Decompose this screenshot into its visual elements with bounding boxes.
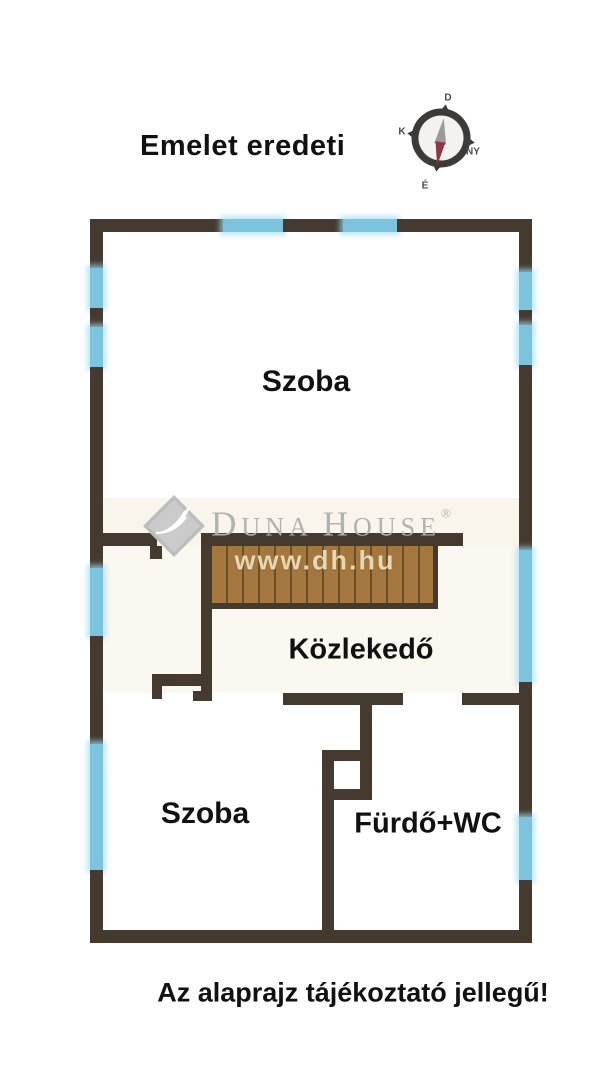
window-segment: [519, 817, 532, 880]
outer-wall-top: [397, 219, 532, 232]
registered-mark: ®: [441, 506, 451, 521]
watermark-website: www.dh.hu: [235, 546, 396, 577]
compass-label-south: D: [444, 93, 451, 104]
outer-wall-left: [90, 219, 103, 268]
interior-wall-stub: [152, 674, 212, 686]
window-segment: [519, 325, 532, 365]
outer-wall-right: [519, 310, 532, 325]
compass-label-north: É: [422, 181, 429, 192]
brand-letters: UNA: [241, 513, 312, 542]
interior-wall-room-divider: [322, 750, 334, 936]
page-title: Emelet eredeti: [140, 130, 345, 163]
window-segment: [519, 550, 532, 682]
shaft-wall-bottom: [322, 789, 368, 800]
compass-icon: [407, 104, 475, 172]
brand-letters: OUSE: [353, 513, 441, 542]
compass-rose: D NY É K: [396, 88, 488, 196]
outer-wall-left: [90, 636, 103, 744]
outer-wall-left: [90, 308, 103, 327]
window-segment: [343, 219, 397, 232]
interior-wall-bath-entry: [360, 693, 372, 800]
window-segment: [90, 327, 103, 367]
outer-wall-right: [519, 219, 532, 272]
watermark-brand: DUNAHOUSE®: [211, 507, 451, 542]
room-label-kozlekedo: Közlekedő: [288, 634, 433, 667]
outer-wall-top: [283, 219, 343, 232]
outer-wall-bottom: [90, 930, 532, 943]
footer-note: Az alaprajz tájékoztató jellegű!: [157, 978, 549, 1009]
interior-wall-stub-hook: [152, 686, 162, 699]
compass-label-east: K: [398, 127, 405, 138]
outer-wall-top: [90, 219, 223, 232]
window-segment: [90, 744, 103, 870]
window-segment: [90, 568, 103, 636]
window-segment: [519, 272, 532, 310]
window-segment: [90, 268, 103, 308]
interior-wall-corridor-bottom-left: [283, 693, 403, 705]
window-segment: [223, 219, 283, 232]
floor-plan-page: Emelet eredeti D NY É K: [0, 0, 600, 1067]
room-label-upper-szoba: Szoba: [262, 365, 350, 399]
brand-letter: H: [323, 505, 353, 544]
duna-house-logo-icon: [141, 493, 207, 559]
room-label-furdo-wc: Fürdő+WC: [354, 808, 501, 841]
interior-wall-corridor-bottom-right: [462, 693, 532, 705]
compass-label-west: NY: [466, 147, 480, 158]
brand-letter: D: [211, 505, 241, 544]
room-label-lower-szoba: Szoba: [161, 797, 249, 831]
outer-wall-right: [519, 365, 532, 550]
interior-wall-stair-foot: [193, 691, 212, 701]
